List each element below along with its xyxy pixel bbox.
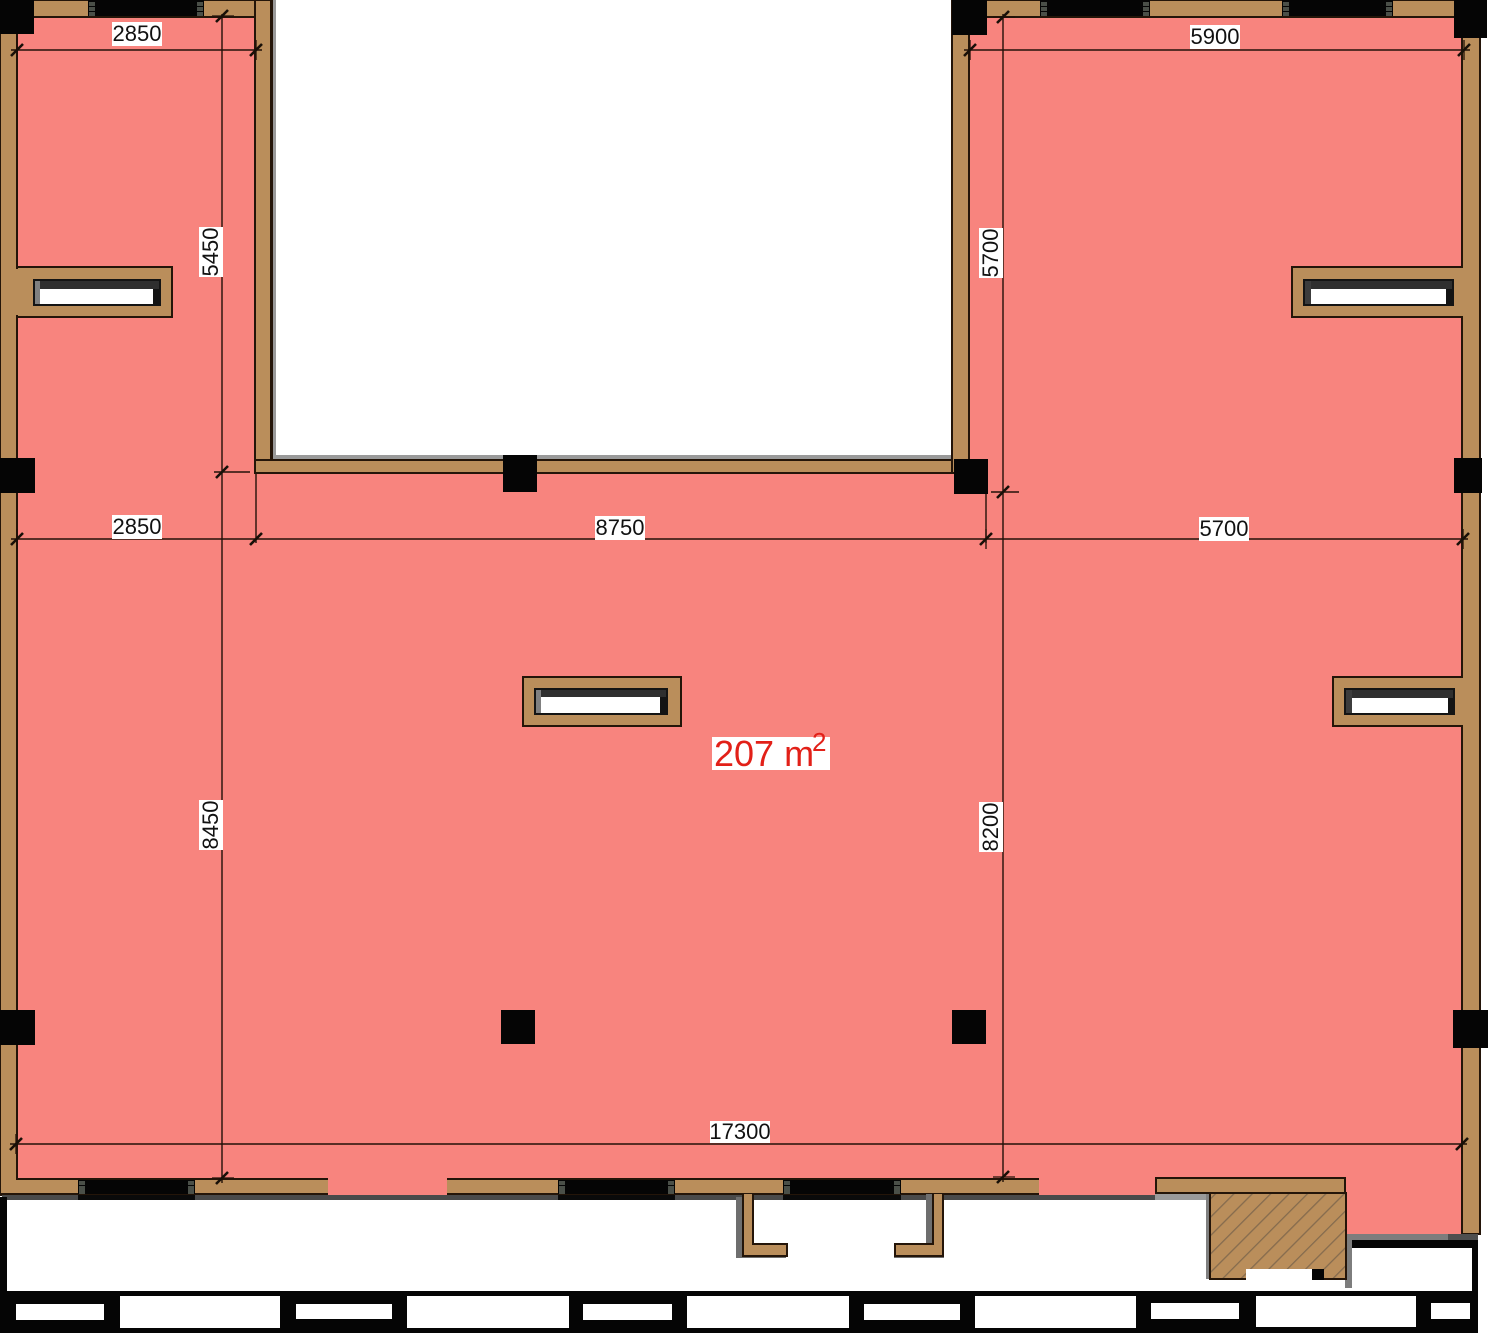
svg-text:207 m: 207 m (714, 733, 814, 774)
svg-text:8200: 8200 (978, 803, 1003, 852)
svg-text:8450: 8450 (198, 801, 223, 850)
svg-text:2: 2 (812, 727, 826, 757)
svg-text:5700: 5700 (978, 229, 1003, 278)
svg-text:5900: 5900 (1191, 24, 1240, 49)
svg-text:5450: 5450 (198, 228, 223, 277)
svg-text:17300: 17300 (709, 1119, 770, 1144)
svg-text:8750: 8750 (596, 515, 645, 540)
svg-text:2850: 2850 (113, 21, 162, 46)
svg-text:2850: 2850 (113, 514, 162, 539)
svg-text:5700: 5700 (1200, 516, 1249, 541)
